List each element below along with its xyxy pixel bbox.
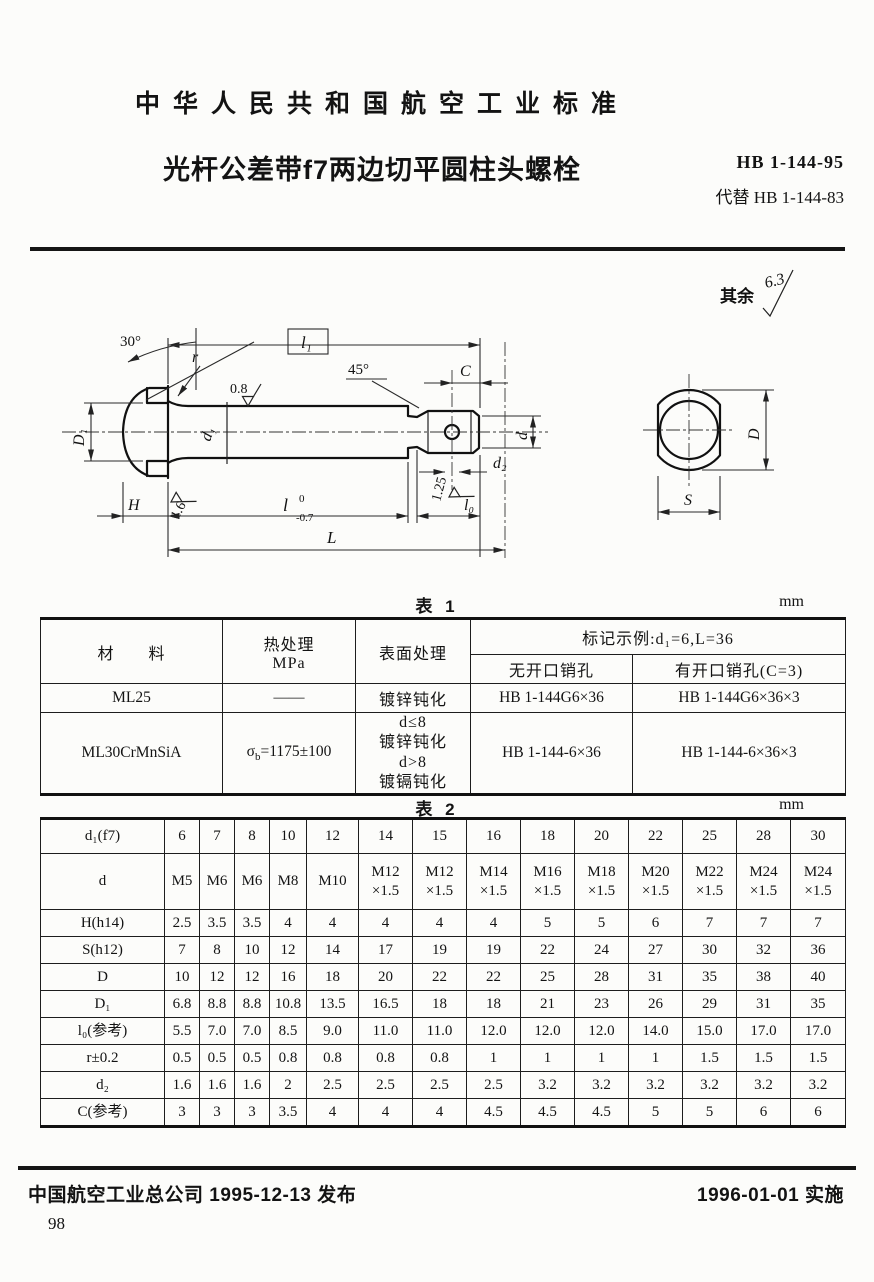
table2-cell: M20 ×1.5 (629, 854, 683, 910)
dim-L: L (326, 528, 336, 547)
table2-cell: 3.5 (270, 1099, 307, 1127)
table2-cell: 2.5 (307, 1072, 359, 1099)
table2-cell: 20 (575, 819, 629, 854)
table2-cell: 1 (629, 1045, 683, 1072)
table2-cell: 23 (575, 991, 629, 1018)
table2-cell: 9.0 (307, 1018, 359, 1045)
table2-cell: 1.6 (200, 1072, 235, 1099)
table2-row: D₁6.88.88.810.813.516.51818212326293135 (41, 991, 846, 1018)
table2-cell: 2.5 (165, 910, 200, 937)
heat-cell: σb=1175±100 (223, 713, 356, 795)
table2-cell: 4.5 (521, 1099, 575, 1127)
table2-row: d₁(f7)6781012141516182022252830 (41, 819, 846, 854)
table2-cell: 16 (270, 964, 307, 991)
table2-cell: 5 (521, 910, 575, 937)
table1-row-ml30: ML30CrMnSiA σb=1175±100 d≤8 镀锌钝化 d>8 镀镉钝… (41, 713, 846, 795)
marking-no-hole-cell: HB 1-144G6×36 (471, 684, 633, 713)
table2-row: H(h14)2.53.53.544444556777 (41, 910, 846, 937)
table2-cell: 4 (359, 910, 413, 937)
document-title: 光杆公差带f7两边切平圆柱头螺栓 (163, 148, 581, 187)
table2-cell: 27 (629, 937, 683, 964)
table2-cell: 7 (683, 910, 737, 937)
table2-cell: 1.6 (235, 1072, 270, 1099)
table2-cell: 17.0 (791, 1018, 846, 1045)
table2-cell: 18 (467, 991, 521, 1018)
table2-cell: 30 (791, 819, 846, 854)
table2-cell: 25 (683, 819, 737, 854)
table2-cell: 31 (737, 991, 791, 1018)
heat-line2: MPa (225, 655, 353, 673)
table2-cell: 16.5 (359, 991, 413, 1018)
table2-cell: 29 (683, 991, 737, 1018)
table2-cell: 3.2 (791, 1072, 846, 1099)
technical-drawing: 其余 6.3 l₁ (0, 250, 874, 585)
table2-cell: 13.5 (307, 991, 359, 1018)
table2-row: C(参考)3333.54444.54.54.55566 (41, 1099, 846, 1127)
table2-cell: 7 (165, 937, 200, 964)
table2-cell: 3 (200, 1099, 235, 1127)
dim-d: d (514, 431, 531, 440)
table2-cell: 2.5 (359, 1072, 413, 1099)
table2-row: l₀(参考)5.57.07.08.59.011.011.012.012.012.… (41, 1018, 846, 1045)
table2-cell: 15.0 (683, 1018, 737, 1045)
table2-cell: 8 (200, 937, 235, 964)
table2-cell: 6 (629, 910, 683, 937)
table2-cell: 3.2 (629, 1072, 683, 1099)
table2-cell: 32 (737, 937, 791, 964)
table2-cell: 10.8 (270, 991, 307, 1018)
surface-cell: 镀锌钝化 (356, 684, 471, 713)
table2-cell: 19 (413, 937, 467, 964)
dim-angle-45: 45° (348, 362, 369, 378)
table2-row-label: r±0.2 (41, 1045, 165, 1072)
table2-cell: 2.5 (467, 1072, 521, 1099)
table2-row-label: D (41, 964, 165, 991)
table2-cell: 5 (629, 1099, 683, 1127)
table2-cell: M18 ×1.5 (575, 854, 629, 910)
table2-row: r±0.20.50.50.50.80.80.80.811111.51.51.5 (41, 1045, 846, 1072)
table2-cell: 1.5 (737, 1045, 791, 1072)
table2-cell: 0.5 (235, 1045, 270, 1072)
table2-cell: 0.8 (270, 1045, 307, 1072)
table2-cell: 1.5 (791, 1045, 846, 1072)
table2-cell: 31 (629, 964, 683, 991)
table2-cell: 4 (307, 1099, 359, 1127)
table2-cell: 4.5 (467, 1099, 521, 1127)
table2-cell: 11.0 (359, 1018, 413, 1045)
table2-cell: 7 (200, 819, 235, 854)
surface-cell: d≤8 镀锌钝化 d>8 镀镉钝化 (356, 713, 471, 795)
table2-cell: 8.8 (235, 991, 270, 1018)
table2-cell: 18 (413, 991, 467, 1018)
table2-cell: 7.0 (235, 1018, 270, 1045)
table2-cell: M24 ×1.5 (791, 854, 846, 910)
table2-cell: 1.5 (683, 1045, 737, 1072)
table2-cell: M24 ×1.5 (737, 854, 791, 910)
table2-cell: 12.0 (467, 1018, 521, 1045)
table2-cell: 28 (575, 964, 629, 991)
table2-cell: 18 (521, 819, 575, 854)
table2-cell: 2 (270, 1072, 307, 1099)
table2-cell: 22 (629, 819, 683, 854)
heat-line1: 热处理 (225, 631, 353, 655)
table1-header-heat: 热处理 MPa (223, 619, 356, 684)
table2-cell: 3.2 (737, 1072, 791, 1099)
remainder-roughness-value: 6.3 (763, 271, 787, 292)
table2-cell: 3.2 (575, 1072, 629, 1099)
table2-cell: 15 (413, 819, 467, 854)
table2-cell: 19 (467, 937, 521, 964)
dim-l: l (283, 495, 288, 515)
table2-cell: 22 (521, 937, 575, 964)
table2-cell: 25 (521, 964, 575, 991)
table2-cell: 3 (235, 1099, 270, 1127)
table2-cell: 12.0 (575, 1018, 629, 1045)
table1: 材 料 热处理 MPa 表面处理 标记示例:d₁=6,L=36 无开口销孔 有开… (40, 617, 846, 796)
table2-unit: mm (779, 796, 804, 814)
table2-cell: M5 (165, 854, 200, 910)
table2-cell: 8 (235, 819, 270, 854)
table2-cell: 0.5 (165, 1045, 200, 1072)
table2-cell: 3.5 (200, 910, 235, 937)
table2-row-label: d₂ (41, 1072, 165, 1099)
table2-cell: M14 ×1.5 (467, 854, 521, 910)
table2-cell: M10 (307, 854, 359, 910)
table2-cell: M22 ×1.5 (683, 854, 737, 910)
table2-cell: 12 (200, 964, 235, 991)
marking-no-hole-cell: HB 1-144-6×36 (471, 713, 633, 795)
standard-org-title: 中华人民共和国航空工业标准 (135, 84, 629, 120)
table2-cell: 22 (467, 964, 521, 991)
table2-cell: 3.5 (235, 910, 270, 937)
table2-cell: 6.8 (165, 991, 200, 1018)
table2-cell: M16 ×1.5 (521, 854, 575, 910)
table2-cell: 0.8 (413, 1045, 467, 1072)
footer-effective: 1996-01-01 实施 (697, 1180, 844, 1207)
dim-l-tol-upper: 0 (299, 493, 305, 505)
dim-c: C (460, 363, 471, 380)
table2-cell: 4 (467, 910, 521, 937)
footer-issued: 中国航空工业总公司 1995-12-13 发布 (28, 1180, 356, 1207)
table2-cell: 3 (165, 1099, 200, 1127)
table2-cell: 7.0 (200, 1018, 235, 1045)
table2-cell: 12.0 (521, 1018, 575, 1045)
table2-cell: 17.0 (737, 1018, 791, 1045)
table2-cell: 5 (683, 1099, 737, 1127)
divider-bottom (18, 1166, 856, 1170)
table2-cell: 1 (575, 1045, 629, 1072)
table2: d₁(f7)6781012141516182022252830dM5M6M6M8… (40, 817, 846, 1128)
dim-H: H (127, 497, 141, 514)
table2-cell: 36 (791, 937, 846, 964)
dim-D1: D₁ (71, 429, 88, 447)
table2-cell: M6 (235, 854, 270, 910)
table2-row-label: d₁(f7) (41, 819, 165, 854)
table2-row: D1012121618202222252831353840 (41, 964, 846, 991)
table2-cell: M12 ×1.5 (413, 854, 467, 910)
table2-cell: 8.8 (200, 991, 235, 1018)
table2-cell: 4 (413, 910, 467, 937)
standard-number: HB 1-144-95 (737, 152, 845, 173)
table2-cell: 11.0 (413, 1018, 467, 1045)
table2-cell: 3.2 (521, 1072, 575, 1099)
table2-cell: 17 (359, 937, 413, 964)
table2-cell: 20 (359, 964, 413, 991)
table2-cell: 18 (307, 964, 359, 991)
table1-caption: 表 1 (0, 592, 874, 617)
bolt-end-view: D S (643, 374, 774, 520)
material-cell: ML25 (41, 684, 223, 713)
table2-cell: 7 (791, 910, 846, 937)
table2-cell: M12 ×1.5 (359, 854, 413, 910)
table2-cell: 1 (467, 1045, 521, 1072)
dim-S: S (684, 492, 692, 509)
dim-l-tol-lower: -0.7 (296, 512, 314, 524)
table1-header-with-pin-hole: 有开口销孔(C=3) (633, 655, 846, 684)
table2-cell: 12 (270, 937, 307, 964)
table2-cell: 4 (307, 910, 359, 937)
table2-cell: 10 (165, 964, 200, 991)
replaces-note: 代替 HB 1-144-83 (716, 183, 844, 208)
table2-row: d₂1.61.61.622.52.52.52.53.23.23.23.23.23… (41, 1072, 846, 1099)
dim-angle-30: 30° (120, 334, 141, 350)
table2-cell: 1.6 (165, 1072, 200, 1099)
table2-cell: 38 (737, 964, 791, 991)
table2-cell: 14 (359, 819, 413, 854)
table1-header-surface: 表面处理 (356, 619, 471, 684)
table2-cell: 8.5 (270, 1018, 307, 1045)
table1-unit: mm (779, 593, 804, 611)
table2-cell: 12 (307, 819, 359, 854)
table2-row-label: l₀(参考) (41, 1018, 165, 1045)
dim-rough-08: 0.8 (230, 382, 248, 397)
table2-cell: 5.5 (165, 1018, 200, 1045)
table2-cell: 0.8 (359, 1045, 413, 1072)
table2-cell: 35 (683, 964, 737, 991)
table2-cell: 4 (270, 910, 307, 937)
table2-cell: M8 (270, 854, 307, 910)
dim-D: D (746, 428, 763, 441)
table2-cell: 0.8 (307, 1045, 359, 1072)
table2-cell: 6 (165, 819, 200, 854)
table2-cell: 0.5 (200, 1045, 235, 1072)
table2-cell: 6 (737, 1099, 791, 1127)
table1-header-example: 标记示例:d₁=6,L=36 (471, 619, 846, 655)
table2-cell: 4 (359, 1099, 413, 1127)
table2-row-label: C(参考) (41, 1099, 165, 1127)
material-cell: ML30CrMnSiA (41, 713, 223, 795)
table2-cell: 28 (737, 819, 791, 854)
table2-cell: 30 (683, 937, 737, 964)
remainder-roughness-label: 其余 (720, 286, 755, 306)
table2-row-label: H(h14) (41, 910, 165, 937)
table2-cell: 6 (791, 1099, 846, 1127)
dim-rough-125: 1.25 (429, 475, 450, 503)
table2-row-label: S(h12) (41, 937, 165, 964)
table2-cell: 1 (521, 1045, 575, 1072)
page-number: 98 (48, 1214, 65, 1234)
table2-cell: 21 (521, 991, 575, 1018)
table2-cell: 3.2 (683, 1072, 737, 1099)
table1-row-ml25: ML25 —— 镀锌钝化 HB 1-144G6×36 HB 1-144G6×36… (41, 684, 846, 713)
table2-cell: 7 (737, 910, 791, 937)
dim-l1: l₁ (301, 333, 312, 352)
marking-with-hole-cell: HB 1-144G6×36×3 (633, 684, 846, 713)
dim-rough-16: 1.6 (168, 499, 189, 521)
heat-cell: —— (223, 684, 356, 713)
table2-cell: 22 (413, 964, 467, 991)
table2-cell: 24 (575, 937, 629, 964)
table2-cell: 40 (791, 964, 846, 991)
table1-header-material: 材 料 (41, 619, 223, 684)
table2-cell: 14.0 (629, 1018, 683, 1045)
document-page: 中华人民共和国航空工业标准 光杆公差带f7两边切平圆柱头螺栓 HB 1-144-… (0, 0, 874, 1282)
marking-with-hole-cell: HB 1-144-6×36×3 (633, 713, 846, 795)
table2-cell: 4.5 (575, 1099, 629, 1127)
table2-row: S(h12)78101214171919222427303236 (41, 937, 846, 964)
dim-l0: l₀ (464, 497, 474, 514)
table2-cell: 35 (791, 991, 846, 1018)
table2-cell: 10 (270, 819, 307, 854)
table2-cell: 26 (629, 991, 683, 1018)
table2-body: d₁(f7)6781012141516182022252830dM5M6M6M8… (41, 819, 846, 1127)
dim-d1: d₁ (198, 425, 218, 443)
table2-cell: 4 (413, 1099, 467, 1127)
table1-header-no-pin-hole: 无开口销孔 (471, 655, 633, 684)
table2-cell: 14 (307, 937, 359, 964)
table2-row: dM5M6M6M8M10M12 ×1.5M12 ×1.5M14 ×1.5M16 … (41, 854, 846, 910)
dim-r: r (192, 349, 199, 366)
table2-row-label: d (41, 854, 165, 910)
table2-cell: M6 (200, 854, 235, 910)
table2-cell: 12 (235, 964, 270, 991)
table2-cell: 16 (467, 819, 521, 854)
table2-cell: 5 (575, 910, 629, 937)
table2-cell: 10 (235, 937, 270, 964)
table2-cell: 2.5 (413, 1072, 467, 1099)
table2-row-label: D₁ (41, 991, 165, 1018)
